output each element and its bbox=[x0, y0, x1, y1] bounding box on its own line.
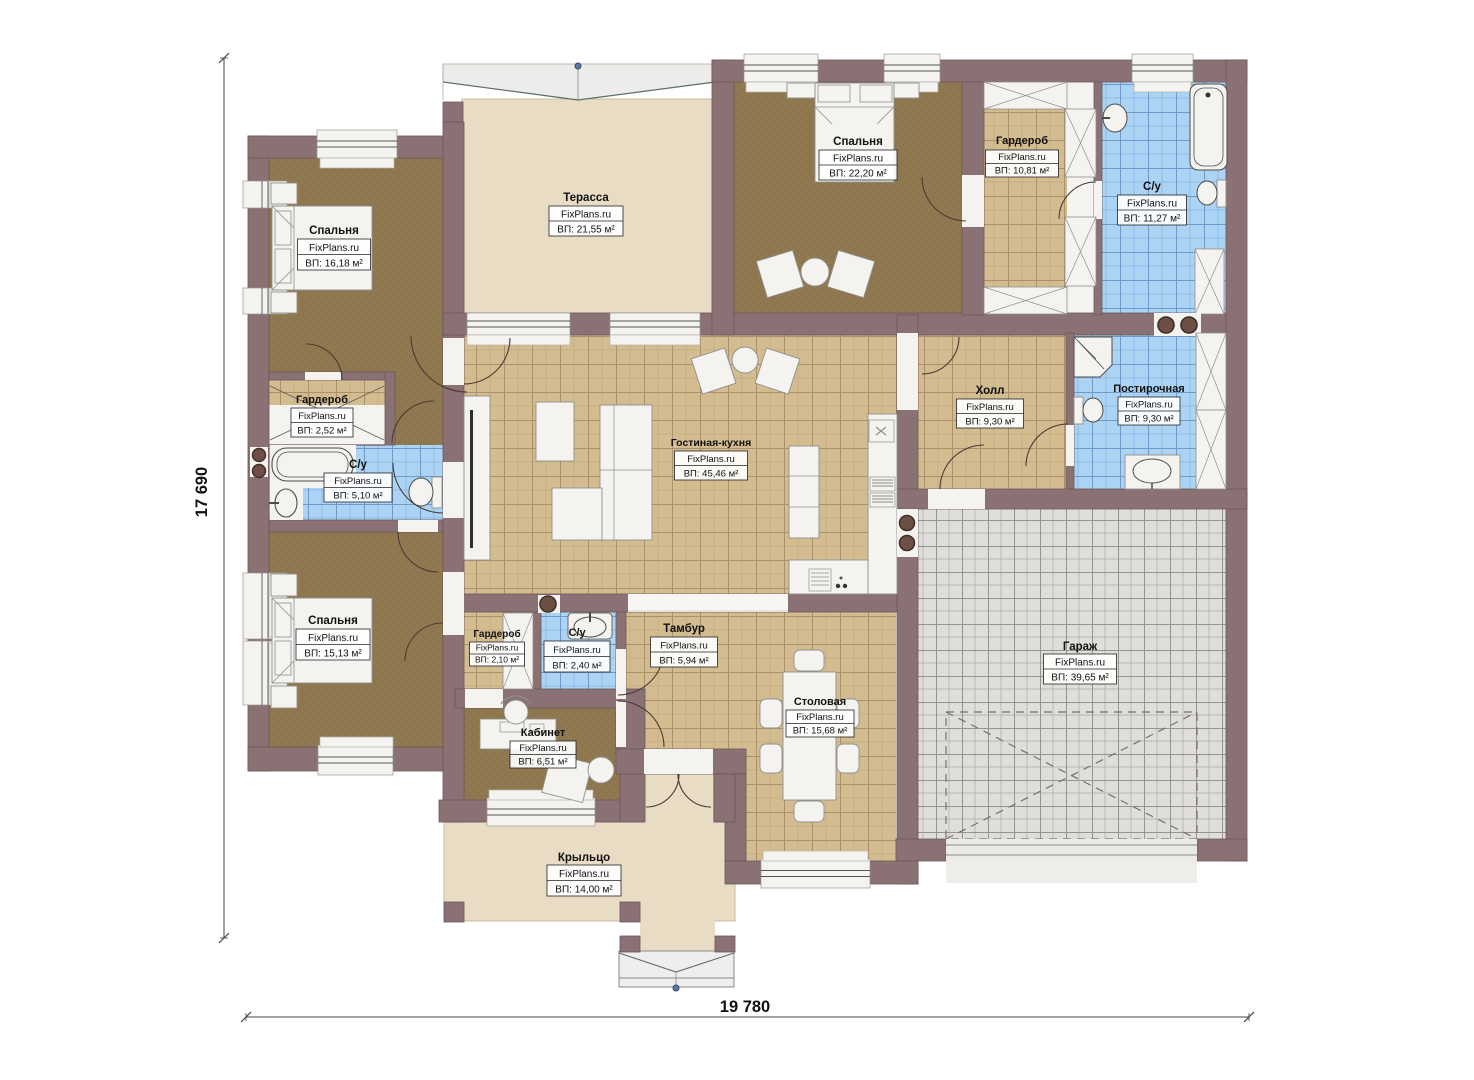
svg-text:FixPlans.ru: FixPlans.ru bbox=[833, 154, 883, 165]
svg-text:ВП: 5,10 м²: ВП: 5,10 м² bbox=[333, 491, 382, 502]
svg-text:FixPlans.ru: FixPlans.ru bbox=[309, 243, 359, 254]
svg-text:Постирочная: Постирочная bbox=[1113, 383, 1184, 395]
svg-text:ВП: 2,10 м²: ВП: 2,10 м² bbox=[475, 655, 519, 665]
svg-text:ВП: 10,81 м²: ВП: 10,81 м² bbox=[995, 166, 1050, 177]
svg-text:FixPlans.ru: FixPlans.ru bbox=[559, 869, 609, 880]
svg-text:FixPlans.ru: FixPlans.ru bbox=[1127, 199, 1177, 210]
svg-text:ВП: 39,65 м²: ВП: 39,65 м² bbox=[1051, 673, 1109, 684]
svg-text:Спальня: Спальня bbox=[309, 225, 359, 237]
svg-text:FixPlans.ru: FixPlans.ru bbox=[998, 152, 1046, 163]
svg-text:Гараж: Гараж bbox=[1063, 641, 1098, 653]
svg-text:ВП: 11,27 м²: ВП: 11,27 м² bbox=[1124, 214, 1181, 225]
svg-text:19 780: 19 780 bbox=[720, 998, 770, 1016]
svg-text:С/у: С/у bbox=[568, 627, 586, 639]
svg-text:FixPlans.ru: FixPlans.ru bbox=[1055, 658, 1105, 669]
svg-text:С/у: С/у bbox=[349, 459, 368, 471]
svg-text:FixPlans.ru: FixPlans.ru bbox=[308, 633, 358, 644]
svg-text:Спальня: Спальня bbox=[833, 136, 883, 148]
svg-text:Крыльцо: Крыльцо bbox=[558, 852, 610, 864]
svg-text:Гостиная-кухня: Гостиная-кухня bbox=[671, 437, 751, 449]
svg-text:Спальня: Спальня bbox=[308, 615, 358, 627]
svg-text:FixPlans.ru: FixPlans.ru bbox=[561, 210, 611, 221]
svg-text:Тамбур: Тамбур bbox=[663, 623, 705, 635]
svg-text:Кабинет: Кабинет bbox=[521, 727, 566, 739]
svg-text:ВП: 2,52 м²: ВП: 2,52 м² bbox=[297, 426, 346, 437]
svg-text:FixPlans.ru: FixPlans.ru bbox=[966, 402, 1014, 413]
svg-text:ВП: 9,30 м²: ВП: 9,30 м² bbox=[1124, 414, 1173, 425]
svg-text:ВП: 45,46 м²: ВП: 45,46 м² bbox=[684, 469, 739, 480]
svg-text:FixPlans.ru: FixPlans.ru bbox=[660, 641, 708, 652]
svg-text:FixPlans.ru: FixPlans.ru bbox=[334, 476, 382, 487]
svg-text:ВП: 15,68 м²: ВП: 15,68 м² bbox=[793, 726, 848, 737]
svg-text:17 690: 17 690 bbox=[193, 467, 211, 517]
svg-text:FixPlans.ru: FixPlans.ru bbox=[476, 643, 519, 653]
svg-text:FixPlans.ru: FixPlans.ru bbox=[519, 743, 567, 754]
svg-text:ВП: 6,51 м²: ВП: 6,51 м² bbox=[518, 757, 567, 768]
svg-text:ВП: 14,00 м²: ВП: 14,00 м² bbox=[555, 885, 613, 896]
svg-text:ВП: 22,20 м²: ВП: 22,20 м² bbox=[829, 169, 887, 180]
svg-text:С/у: С/у bbox=[1143, 181, 1162, 193]
svg-text:ВП: 15,13 м²: ВП: 15,13 м² bbox=[304, 649, 362, 660]
svg-text:Гардероб: Гардероб bbox=[296, 394, 348, 406]
svg-text:FixPlans.ru: FixPlans.ru bbox=[553, 645, 601, 656]
svg-text:Холл: Холл bbox=[976, 385, 1005, 397]
svg-text:Гардероб: Гардероб bbox=[473, 628, 520, 640]
svg-text:FixPlans.ru: FixPlans.ru bbox=[298, 411, 346, 422]
svg-text:FixPlans.ru: FixPlans.ru bbox=[1125, 400, 1173, 411]
svg-text:ВП: 2,40 м²: ВП: 2,40 м² bbox=[552, 661, 601, 672]
svg-text:ВП: 16,18 м²: ВП: 16,18 м² bbox=[305, 259, 363, 270]
svg-text:ВП: 21,55 м²: ВП: 21,55 м² bbox=[557, 225, 615, 236]
svg-text:Столовая: Столовая bbox=[794, 696, 846, 708]
svg-text:ВП: 5,94 м²: ВП: 5,94 м² bbox=[659, 656, 708, 667]
svg-text:ВП: 9,30 м²: ВП: 9,30 м² bbox=[965, 417, 1014, 428]
svg-text:Терасса: Терасса bbox=[563, 192, 609, 204]
svg-text:FixPlans.ru: FixPlans.ru bbox=[796, 712, 844, 723]
svg-text:Гардероб: Гардероб bbox=[996, 135, 1048, 147]
svg-text:FixPlans.ru: FixPlans.ru bbox=[687, 454, 735, 465]
